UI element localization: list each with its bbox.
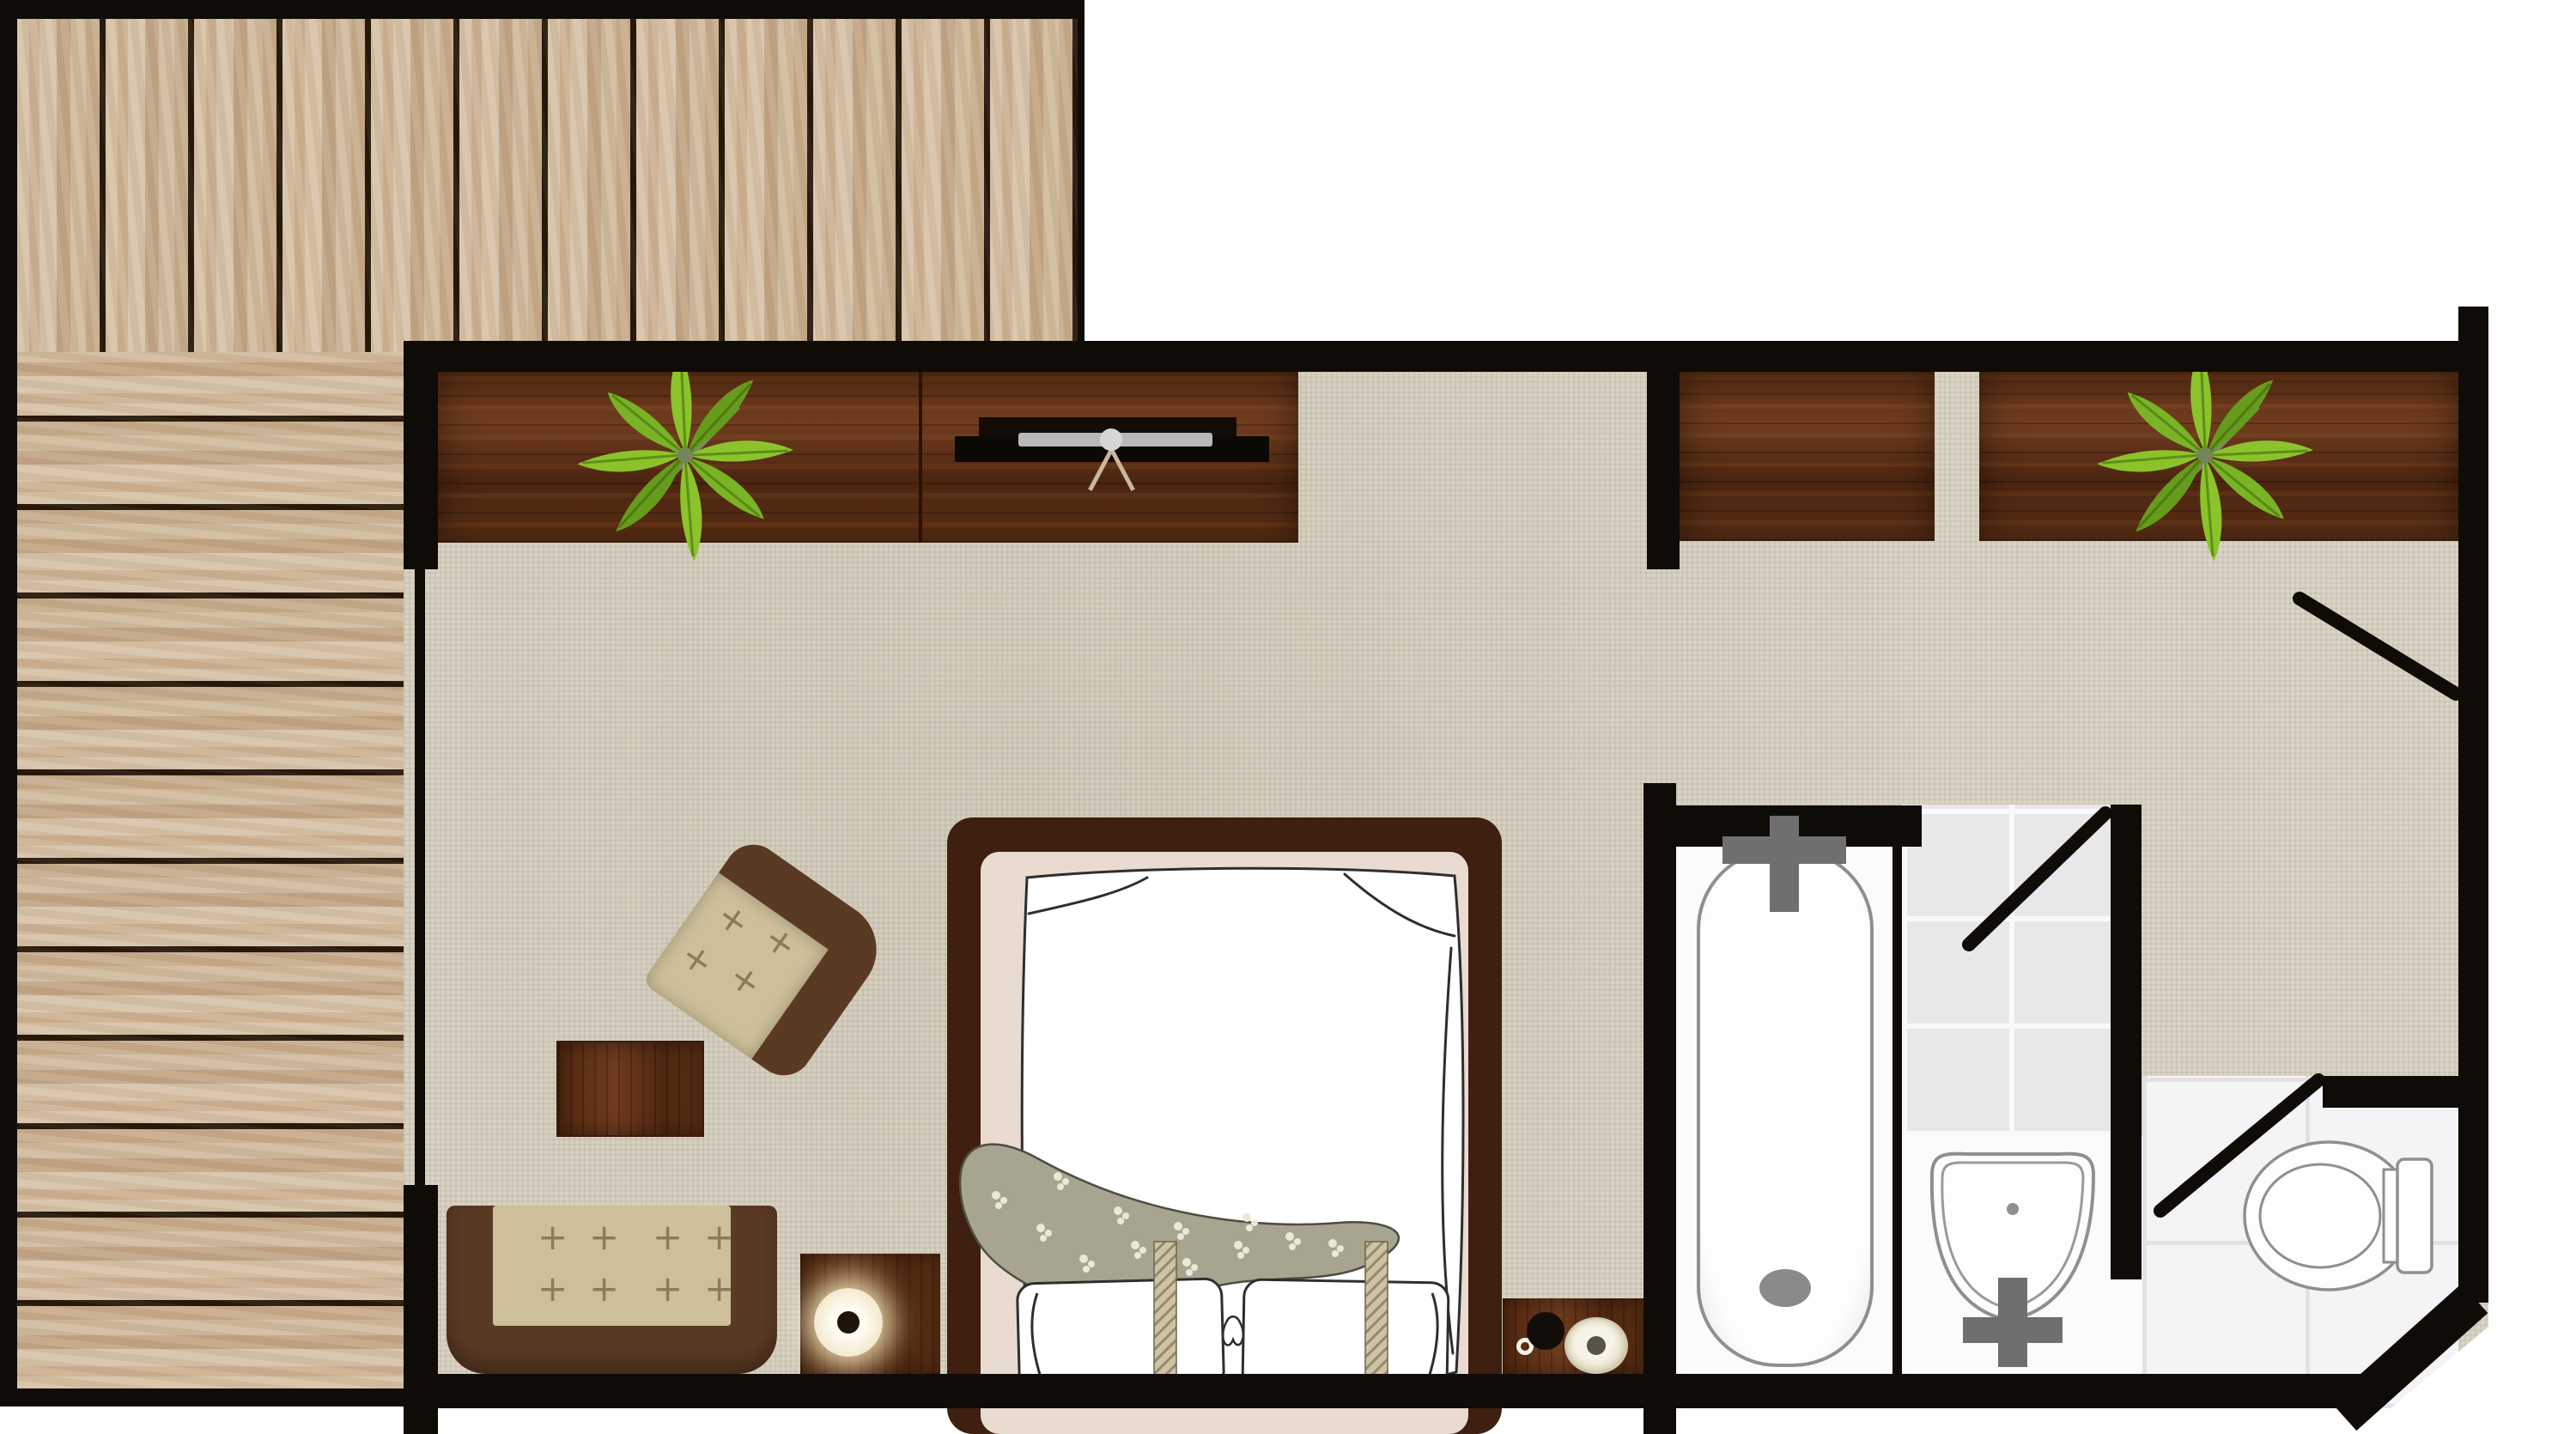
fixtures-overlay [0,0,2576,1434]
bathtub-drain [1759,1269,1811,1307]
sink-faucet-icon [1963,1317,2063,1343]
bathtub-faucet-icon [1722,836,1846,864]
floor-plan: + + + + + + + + + + + + [0,0,2576,1434]
sink-drain [2007,1203,2019,1215]
entry-door-swing [2300,599,2456,694]
shower-door-swing [1969,813,2105,945]
toilet-cistern [2397,1159,2432,1273]
toilet-seat [2260,1164,2380,1267]
